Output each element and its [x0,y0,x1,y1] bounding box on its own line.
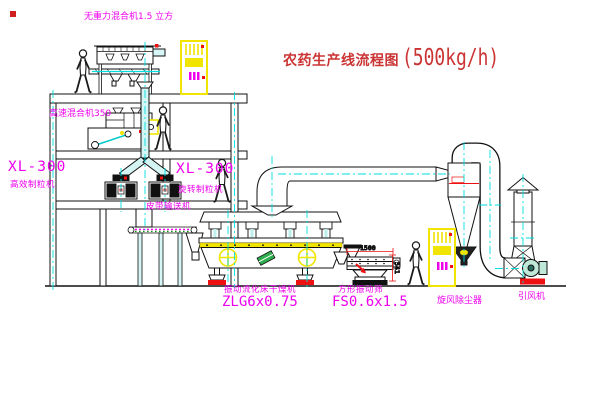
gravity-mixer-drawing [89,44,165,94]
sieve-drawing: 1500 541 [344,244,401,285]
cad-flow-diagram: 1500 541 [0,0,600,403]
label-granulator-mid-model: XL-300 [176,162,234,177]
label-belt-conveyor: 皮带输送机 [146,203,191,212]
title-capacity: (500kg/h) [402,45,499,71]
dim-1500: 1500 [360,244,376,252]
drawing-title: 农药生产线流程图 (500kg/h) [283,45,527,71]
label-dryer-model: ZLG6x0.75 [222,295,298,309]
person-ground [408,242,425,285]
dim-541: 541 [393,262,401,274]
fan-drawing [504,258,547,285]
label-granulator-mid-name: 旋转制粒机 [178,186,223,195]
control-cabinet-lower [429,229,455,286]
title-chinese: 农药生产线流程图 [283,50,399,70]
label-granulator-left-model: XL-300 [8,160,66,175]
label-cyclone: 旋风除尘器 [437,297,482,306]
dryer-drawing [199,212,349,285]
label-speed-mixer: 高速混合机350 [49,110,111,119]
red-mark [10,11,16,17]
dryer-supports [208,268,314,285]
label-sieve-model: FS0.6x1.5 [332,295,408,309]
label-fan: 引风机 [518,293,545,302]
label-granulator-left-name: 高效制粒机 [10,181,55,190]
exhaust-duct [257,167,449,206]
control-cabinet-upper [181,41,207,94]
label-gravity-mixer: 无重力混合机1.5 立方 [84,13,173,22]
belt-conveyor-drawing [128,227,203,286]
